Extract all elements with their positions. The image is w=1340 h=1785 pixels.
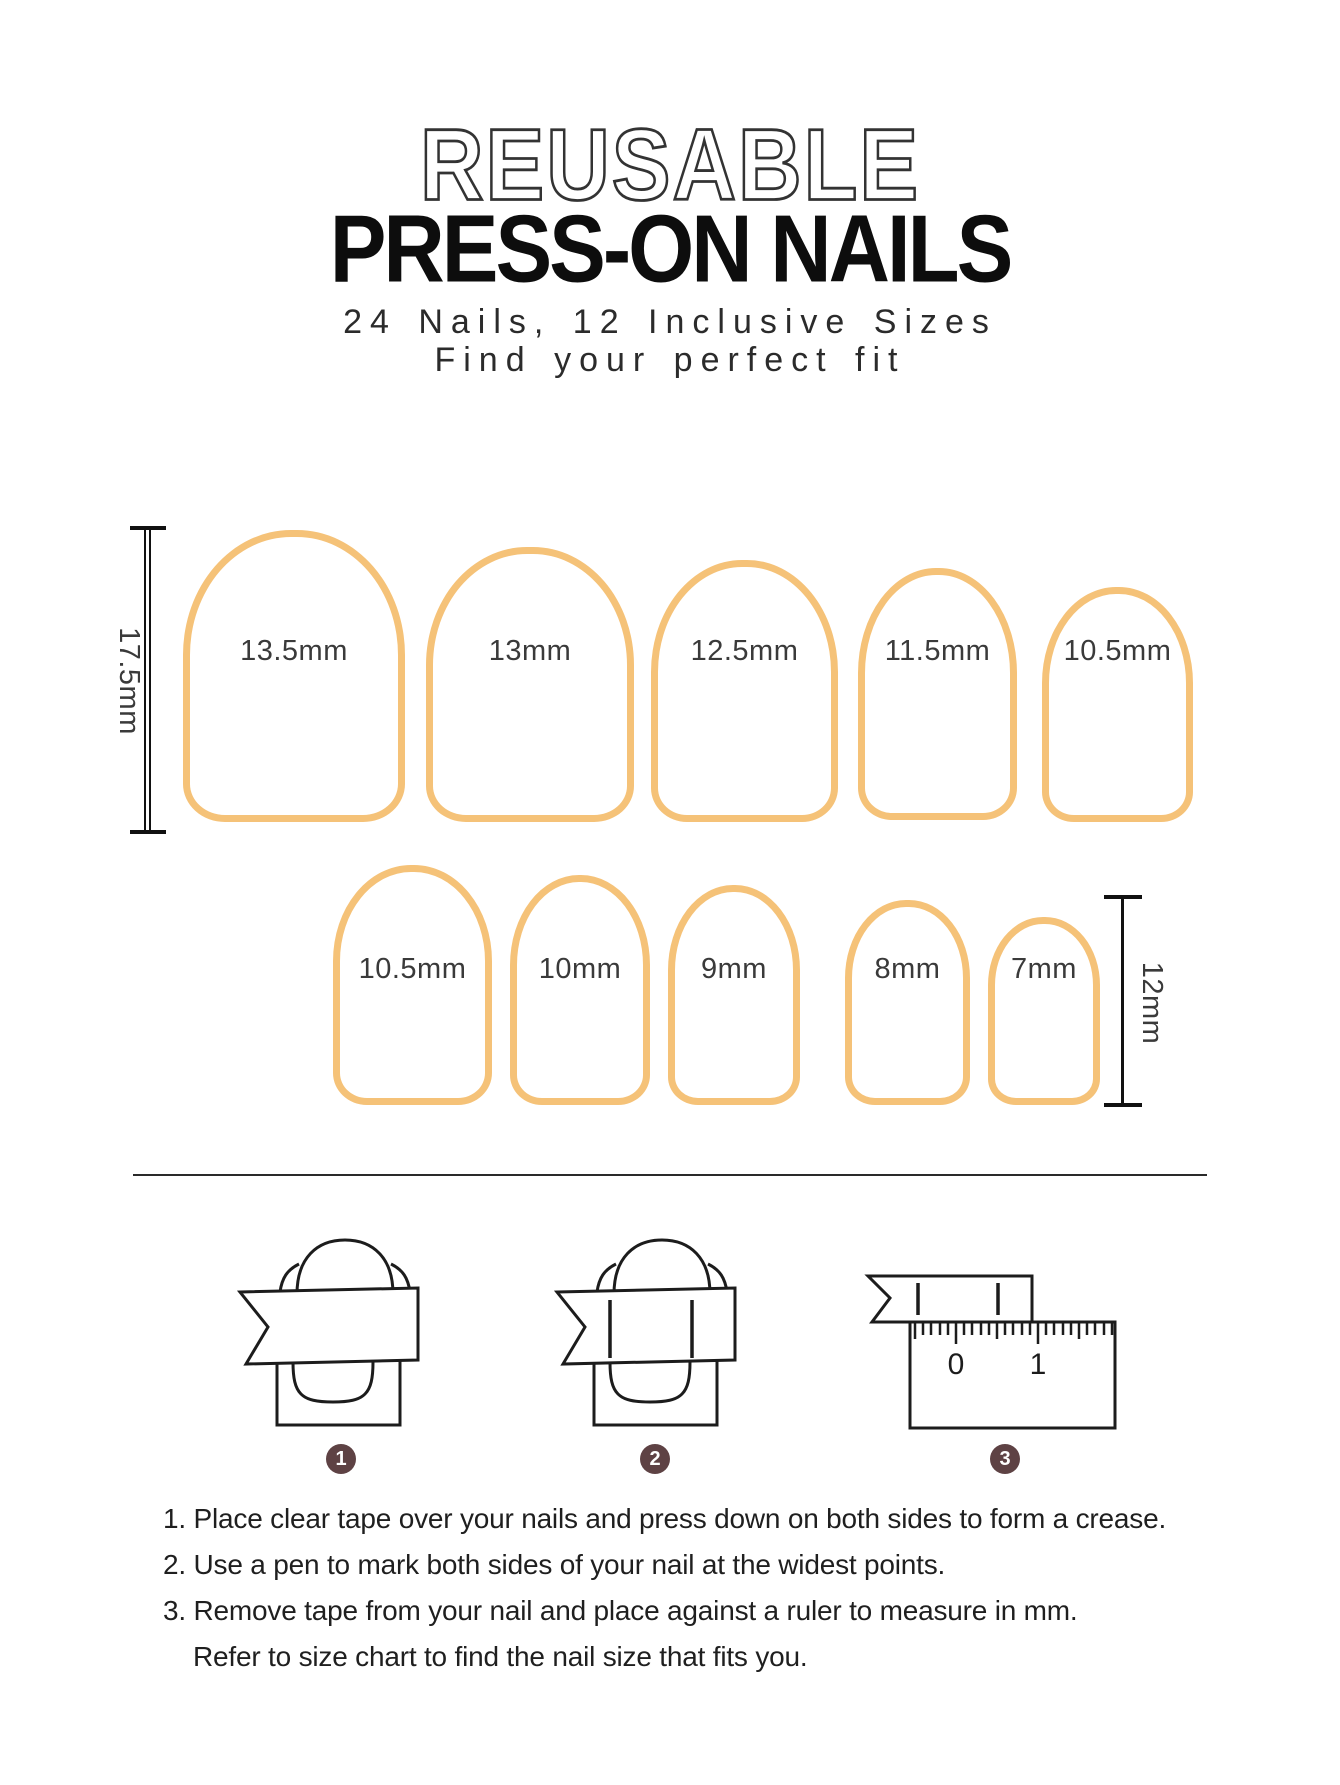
nail-outline: 13mm bbox=[426, 547, 634, 822]
nail-size-label: 10.5mm bbox=[1049, 635, 1186, 668]
step3-measure-on-ruler-icon: 0 1 bbox=[858, 1262, 1128, 1437]
subtitle-line-2: Find your perfect fit bbox=[0, 341, 1340, 380]
measure-cap-bottom bbox=[1104, 1103, 1142, 1107]
step-2-badge: 2 bbox=[640, 1444, 670, 1474]
press-on-nails-size-chart-infographic: REUSABLE PRESS-ON NAILS 24 Nails, 12 Inc… bbox=[0, 0, 1340, 1785]
nail-size-label: 9mm bbox=[675, 953, 793, 986]
nail-size-label: 13mm bbox=[433, 635, 627, 668]
step1-tape-on-nail-icon bbox=[235, 1236, 435, 1432]
nail-size-label: 7mm bbox=[995, 953, 1093, 986]
nail-outline: 12.5mm bbox=[651, 560, 838, 822]
ruler-number-1: 1 bbox=[1030, 1348, 1047, 1381]
nail-size-label: 10mm bbox=[517, 953, 643, 986]
step-1-badge: 1 bbox=[326, 1444, 356, 1474]
row1-length-label: 17.5mm bbox=[115, 616, 145, 746]
nail-outline: 13.5mm bbox=[183, 530, 405, 822]
measure-double-line bbox=[144, 530, 151, 830]
nail-size-label: 12.5mm bbox=[658, 635, 831, 668]
instruction-line-2: 2. Use a pen to mark both sides of your … bbox=[163, 1549, 945, 1581]
nail-outline: 7mm bbox=[988, 917, 1100, 1105]
nail-size-label: 13.5mm bbox=[190, 635, 398, 668]
title-press-on-nails: PRESS-ON NAILS bbox=[0, 198, 1340, 301]
nail-outline: 8mm bbox=[845, 900, 970, 1105]
instruction-line-4: Refer to size chart to find the nail siz… bbox=[193, 1641, 807, 1673]
nail-outline: 10mm bbox=[510, 875, 650, 1105]
nail-size-label: 10.5mm bbox=[340, 953, 485, 986]
nail-outline: 11.5mm bbox=[858, 568, 1017, 820]
row2-length-label: 12mm bbox=[1138, 948, 1168, 1058]
ruler-number-0: 0 bbox=[948, 1348, 965, 1381]
section-divider bbox=[133, 1174, 1207, 1176]
step-3-badge: 3 bbox=[990, 1444, 1020, 1474]
instruction-line-3: 3. Remove tape from your nail and place … bbox=[163, 1595, 1078, 1627]
measure-cap-bottom bbox=[130, 830, 166, 834]
measure-line bbox=[1121, 899, 1124, 1103]
nail-size-label: 8mm bbox=[852, 953, 963, 986]
nail-size-label: 11.5mm bbox=[865, 635, 1010, 668]
step2-mark-nail-sides-icon bbox=[552, 1236, 752, 1432]
subtitle-line-1: 24 Nails, 12 Inclusive Sizes bbox=[0, 303, 1340, 342]
nail-outline: 9mm bbox=[668, 885, 800, 1105]
nail-outline: 10.5mm bbox=[333, 865, 492, 1105]
instruction-line-1: 1. Place clear tape over your nails and … bbox=[163, 1503, 1166, 1535]
nail-outline: 10.5mm bbox=[1042, 587, 1193, 822]
